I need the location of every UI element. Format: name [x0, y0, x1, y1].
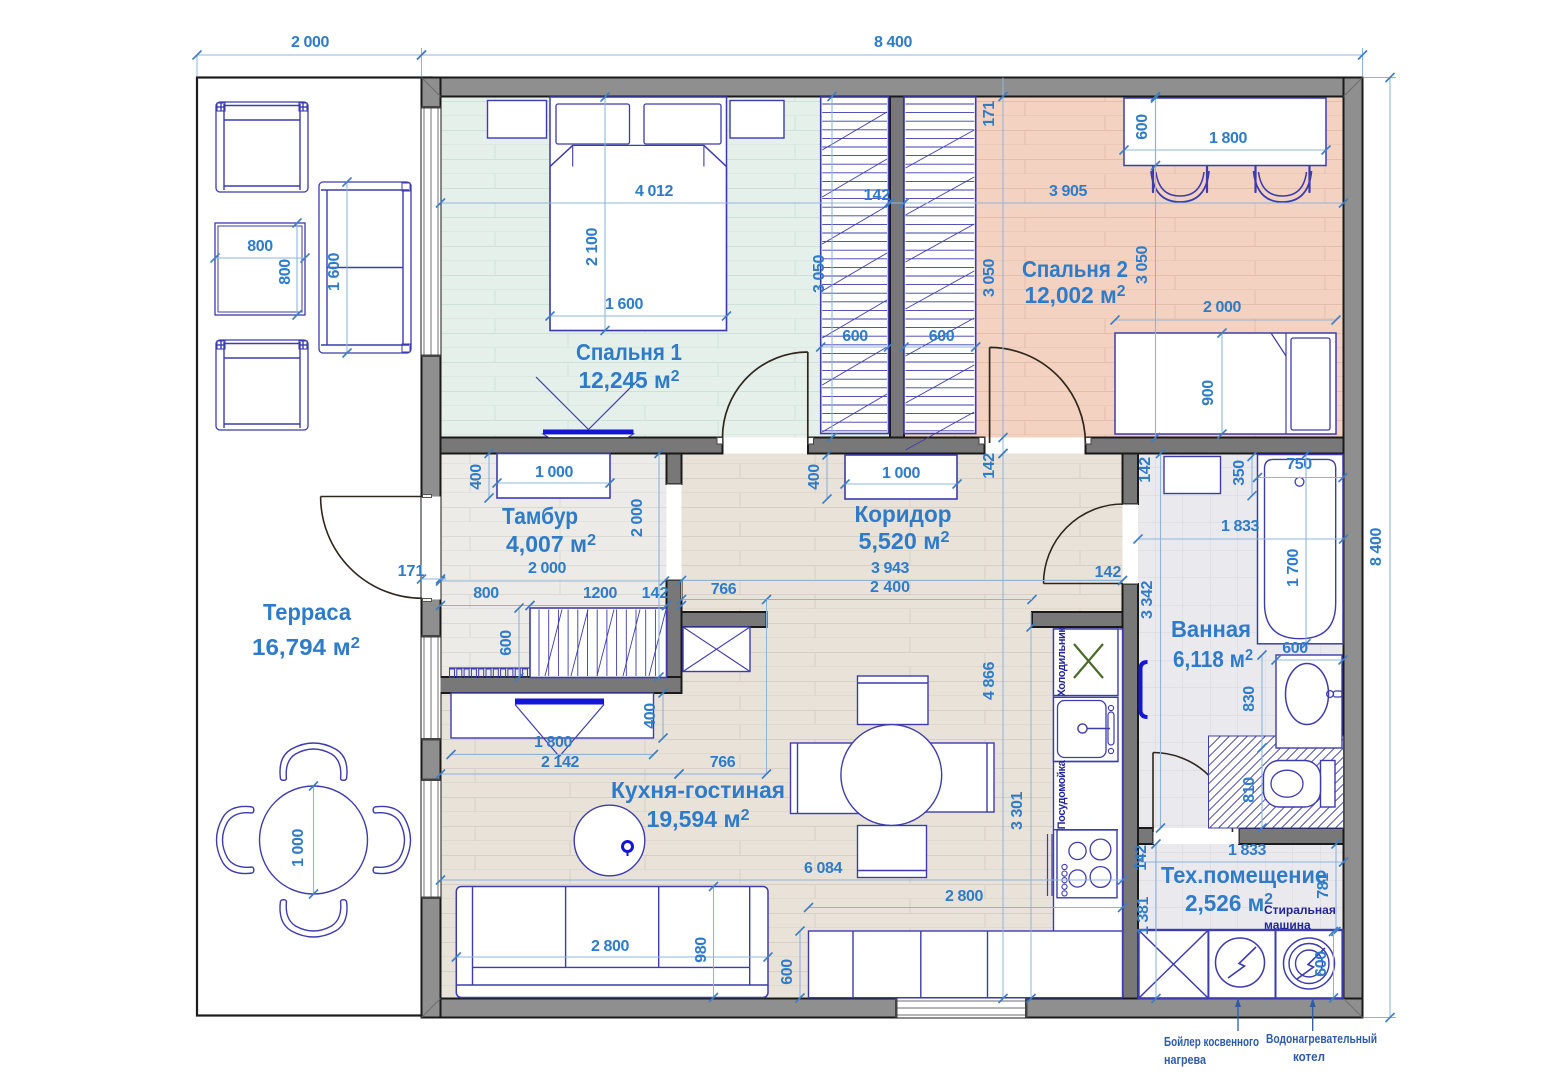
- svg-text:400: 400: [468, 464, 485, 490]
- svg-text:Спальня 2: Спальня 2: [1022, 256, 1128, 282]
- svg-text:8 400: 8 400: [874, 34, 913, 51]
- svg-text:350: 350: [1231, 460, 1248, 486]
- svg-text:2 000: 2 000: [1203, 299, 1242, 316]
- svg-text:Тех.помещение: Тех.помещение: [1161, 862, 1327, 888]
- svg-text:Коридор: Коридор: [855, 501, 952, 527]
- svg-text:600: 600: [842, 328, 868, 345]
- svg-text:2 100: 2 100: [584, 227, 601, 266]
- svg-text:12,002 м2: 12,002 м2: [1025, 282, 1126, 308]
- svg-text:4 866: 4 866: [981, 661, 998, 700]
- svg-text:800: 800: [247, 238, 273, 255]
- svg-text:830: 830: [1241, 686, 1258, 712]
- svg-text:400: 400: [642, 703, 659, 729]
- svg-text:1 700: 1 700: [1285, 548, 1302, 587]
- svg-text:Бойлер косвенного: Бойлер косвенного: [1164, 1035, 1259, 1049]
- svg-text:6,118 м2: 6,118 м2: [1173, 646, 1253, 672]
- svg-text:машина: машина: [1264, 918, 1311, 932]
- svg-text:16,794 м2: 16,794 м2: [252, 634, 360, 660]
- svg-text:142: 142: [981, 453, 998, 479]
- svg-text:Ванная: Ванная: [1171, 616, 1251, 642]
- svg-text:600: 600: [779, 959, 796, 985]
- svg-text:1 381: 1 381: [1135, 896, 1152, 935]
- svg-text:котел: котел: [1293, 1050, 1325, 1064]
- svg-text:3 905: 3 905: [1049, 183, 1088, 200]
- svg-text:8 400: 8 400: [1368, 527, 1385, 566]
- svg-text:142: 142: [642, 585, 669, 602]
- svg-text:2 000: 2 000: [629, 498, 646, 537]
- svg-text:4 012: 4 012: [635, 183, 674, 200]
- svg-text:Тамбур: Тамбур: [502, 503, 578, 529]
- svg-text:1 800: 1 800: [1209, 130, 1248, 147]
- svg-text:980: 980: [693, 937, 710, 963]
- svg-text:12,245 м2: 12,245 м2: [579, 367, 680, 393]
- svg-text:142: 142: [1137, 457, 1154, 483]
- svg-text:3 301: 3 301: [1009, 791, 1026, 830]
- svg-text:1200: 1200: [583, 585, 617, 602]
- svg-text:2 800: 2 800: [591, 938, 630, 955]
- svg-text:нагрева: нагрева: [1164, 1053, 1207, 1067]
- svg-text:800: 800: [277, 259, 294, 285]
- svg-text:3 943: 3 943: [871, 560, 910, 577]
- svg-text:600: 600: [498, 630, 515, 656]
- svg-text:6 084: 6 084: [804, 860, 843, 877]
- svg-text:3 342: 3 342: [1139, 580, 1156, 619]
- svg-text:750: 750: [1286, 456, 1312, 473]
- svg-text:800: 800: [473, 585, 499, 602]
- svg-text:766: 766: [711, 581, 737, 598]
- svg-text:600: 600: [1134, 114, 1151, 140]
- svg-text:900: 900: [1200, 380, 1217, 406]
- svg-text:1 000: 1 000: [882, 465, 921, 482]
- svg-text:1 833: 1 833: [1228, 842, 1267, 859]
- svg-text:1 600: 1 600: [326, 252, 343, 291]
- svg-text:1 833: 1 833: [1221, 518, 1260, 535]
- svg-text:Холодильник: Холодильник: [1056, 627, 1068, 697]
- svg-text:1 000: 1 000: [535, 464, 574, 481]
- svg-text:2 000: 2 000: [528, 560, 567, 577]
- svg-text:2 400: 2 400: [870, 579, 910, 596]
- svg-text:2 800: 2 800: [945, 888, 984, 905]
- svg-text:2,526 м2: 2,526 м2: [1185, 890, 1273, 916]
- svg-text:Водонагревательный: Водонагревательный: [1266, 1032, 1377, 1046]
- svg-text:2 000: 2 000: [291, 34, 330, 51]
- svg-text:1 800: 1 800: [534, 734, 573, 751]
- svg-text:171: 171: [981, 101, 998, 127]
- svg-text:600: 600: [1313, 951, 1330, 977]
- svg-text:3 050: 3 050: [1134, 245, 1151, 284]
- svg-text:4,007 м2: 4,007 м2: [506, 531, 596, 557]
- svg-text:Стиральная: Стиральная: [1264, 903, 1336, 917]
- svg-text:600: 600: [929, 328, 955, 345]
- svg-text:1 600: 1 600: [605, 296, 644, 313]
- svg-text:1 000: 1 000: [290, 828, 307, 867]
- svg-text:142: 142: [1133, 845, 1150, 871]
- svg-text:142: 142: [864, 187, 891, 204]
- svg-text:5,520 м2: 5,520 м2: [859, 528, 950, 554]
- svg-text:Терраса: Терраса: [263, 599, 351, 625]
- svg-text:Кухня-гостиная: Кухня-гостиная: [611, 777, 785, 803]
- svg-text:3 050: 3 050: [811, 254, 828, 293]
- svg-text:2 142: 2 142: [541, 754, 580, 771]
- svg-text:171: 171: [398, 563, 425, 580]
- svg-text:766: 766: [710, 754, 736, 771]
- svg-text:142: 142: [1095, 564, 1122, 581]
- svg-text:19,594 м2: 19,594 м2: [647, 806, 750, 832]
- svg-text:400: 400: [806, 464, 823, 490]
- svg-text:810: 810: [1241, 777, 1258, 803]
- svg-text:Спальня 1: Спальня 1: [576, 339, 682, 365]
- svg-text:600: 600: [1282, 640, 1308, 657]
- svg-text:3 050: 3 050: [981, 258, 998, 297]
- svg-text:Посудомойка: Посудомойка: [1056, 759, 1068, 829]
